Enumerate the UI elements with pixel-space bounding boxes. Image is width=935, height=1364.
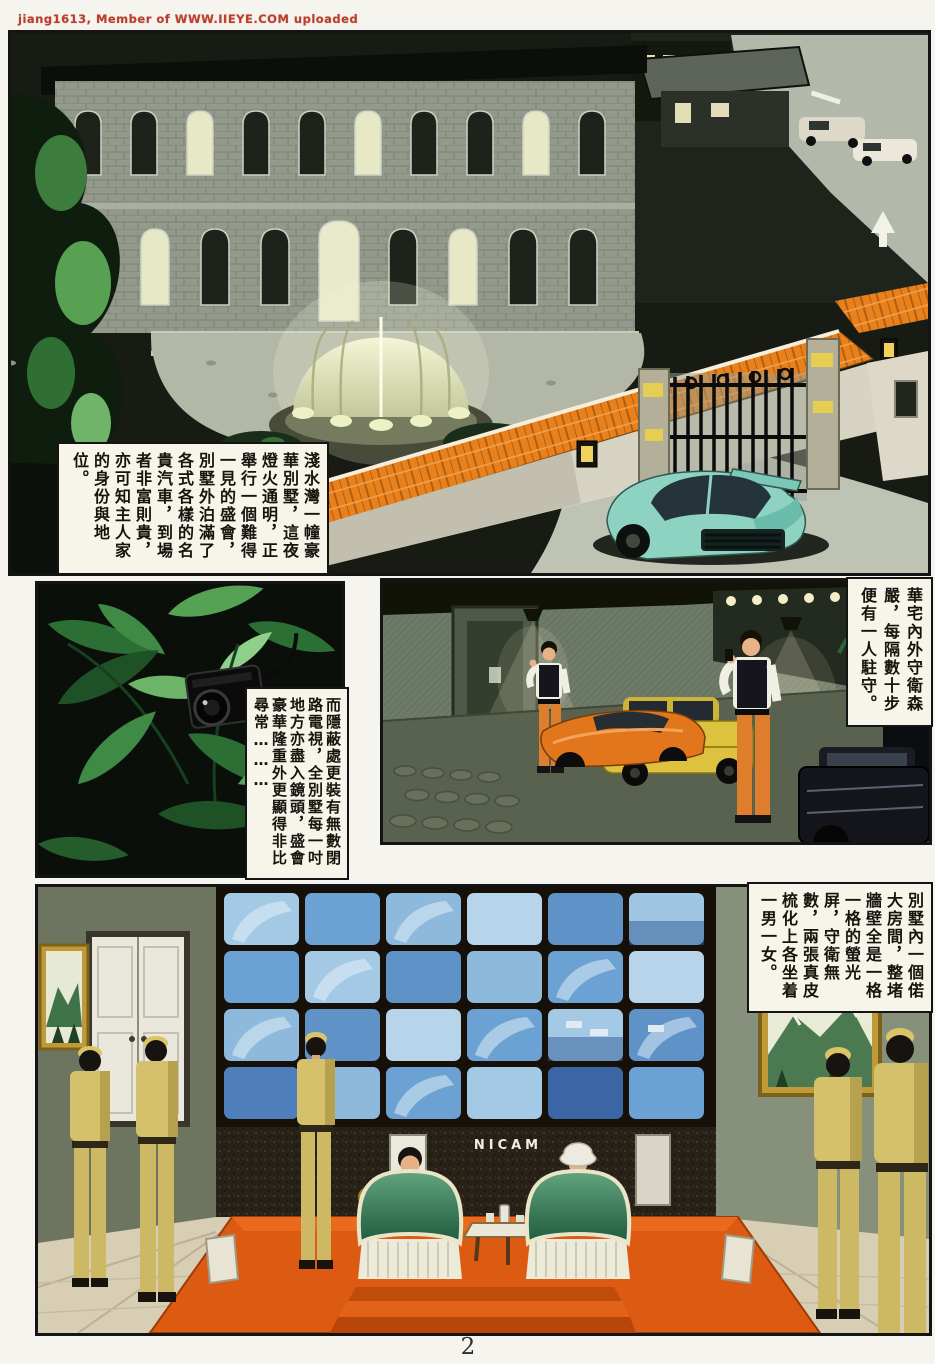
caption-guards: 華宅內外守衛森嚴，每隔數十步便有一人駐守。 (846, 577, 933, 727)
monitor-base-wall: NICAM (216, 1127, 716, 1217)
caption-control-room: 別墅內一個偌大房間，整堵牆壁全是一格一格的螢光屏，守衛無數，兩張真皮梳化上各坐着… (747, 882, 933, 1013)
page-number: 2 (448, 1334, 488, 1360)
monitor-brand-label: NICAM (474, 1138, 542, 1153)
pedestal-right (722, 1235, 754, 1283)
platform-step (348, 1287, 622, 1301)
painting-left (40, 945, 88, 1049)
guest-house (639, 47, 809, 147)
uploader-watermark: jiang1613, Member of WWW.IIEYE.COM uploa… (18, 12, 358, 26)
caption-camera: 而隱蔽處更裝有無數閉路電視，全別墅每一吋地方亦盡入鏡頭，盛會豪華隆重外更顯得非比… (245, 687, 349, 880)
platform-step (330, 1317, 636, 1333)
monitor-wall: NICAM (216, 887, 716, 1217)
comic-page: jiang1613, Member of WWW.IIEYE.COM uploa… (0, 0, 935, 1364)
platform-step (338, 1301, 630, 1317)
caption-mansion: 淺水灣一幢豪華別墅，這夜燈火通明，正舉行一個難得一見的盛會，別墅外泊滿了各式各樣… (57, 442, 329, 575)
base-wall-panel (636, 1135, 670, 1205)
pedestal-left (206, 1235, 238, 1283)
